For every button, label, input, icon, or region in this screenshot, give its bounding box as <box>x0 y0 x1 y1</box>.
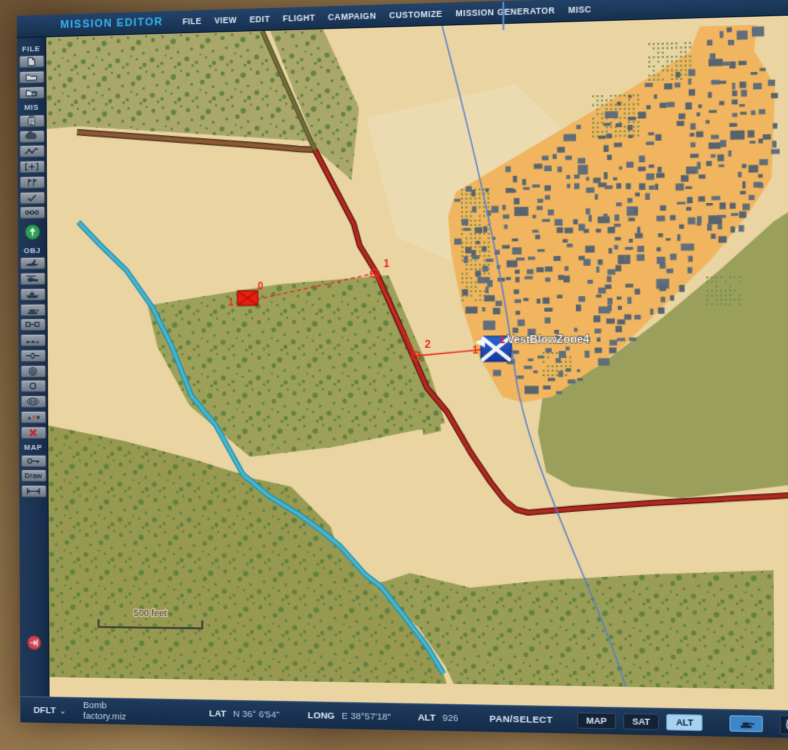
menu-item-misc[interactable]: MISC <box>568 4 591 15</box>
static-object-icon[interactable] <box>20 334 46 347</box>
altitude-readout: ALT 926 <box>418 712 459 724</box>
latitude-readout: LAT N 36° 6'54" <box>209 708 279 720</box>
bullseye-icon[interactable] <box>19 160 45 173</box>
ruler-icon[interactable] <box>21 485 47 498</box>
checklist-icon[interactable] <box>19 191 45 204</box>
lat-value: N 36° 6'54" <box>233 708 279 720</box>
menu-item-edit[interactable]: EDIT <box>250 14 270 25</box>
theme-dropdown[interactable]: DFLT ⌄ <box>34 705 66 716</box>
static-name-number: 1 <box>499 335 505 346</box>
open-mission-icon[interactable] <box>19 71 45 84</box>
pipeline-icon[interactable] <box>20 349 46 362</box>
longitude-readout: LONG E 38°57'18" <box>308 710 391 723</box>
zone-icon[interactable] <box>20 380 46 393</box>
toolbar-section-obj: OBJ <box>24 246 41 255</box>
mission-file-name: Bomb factory.miz <box>83 700 126 722</box>
menu-item-customize[interactable]: CUSTOMIZE <box>389 9 442 21</box>
template-icon[interactable] <box>20 365 46 378</box>
vehicle-icon[interactable] <box>20 303 46 316</box>
toolbar-section-file: FILE <box>22 44 40 53</box>
waypoint-2-label: 2 <box>425 340 431 351</box>
delete-icon[interactable] <box>20 426 46 439</box>
start-icon[interactable] <box>19 222 45 241</box>
terrain-map: 1 0 1 2 1 1 VestBlowZone4 <box>46 15 788 710</box>
route-line-artifact <box>502 2 504 30</box>
vr-backdrop: MISSION EDITOR FILEVIEWEDITFLIGHTCAMPAIG… <box>0 0 788 750</box>
menu-item-mission-generator[interactable]: MISSION GENERATOR <box>455 5 555 18</box>
flags-icon[interactable] <box>19 176 45 189</box>
waypoint-1-label: 1 <box>384 259 390 270</box>
units-group-icon[interactable] <box>20 395 46 408</box>
tank-icon[interactable] <box>730 715 763 732</box>
chevron-down-icon: ⌄ <box>60 706 66 715</box>
unit-number-label: 1 <box>228 298 234 309</box>
alt-label: ALT <box>418 712 436 723</box>
airplane-icon[interactable] <box>19 257 45 270</box>
new-mission-icon[interactable] <box>18 55 44 68</box>
draw-button[interactable]: Draw <box>21 470 47 483</box>
static-name-label: VestBlowZone4 <box>507 333 590 346</box>
menu-items: FILEVIEWEDITFLIGHTCAMPAIGNCUSTOMIZEMISSI… <box>182 4 591 26</box>
routes-icon[interactable] <box>19 145 45 158</box>
helicopter-icon[interactable] <box>20 272 46 285</box>
static-number-label: 1 <box>472 345 478 356</box>
alt-view-button[interactable]: ALT <box>667 714 703 731</box>
alt-value: 926 <box>442 712 458 723</box>
map-view-button[interactable]: MAP <box>577 712 616 729</box>
clock-icon[interactable] <box>780 715 788 735</box>
linked-group-icon[interactable] <box>20 318 46 331</box>
theme-label: DFLT <box>34 705 56 716</box>
menu-item-file[interactable]: FILE <box>182 16 201 26</box>
ship-icon[interactable] <box>20 288 46 301</box>
save-mission-icon[interactable] <box>19 86 45 99</box>
mode-indicator: PAN/SELECT <box>489 713 552 725</box>
mission-editor-window: MISSION EDITOR FILEVIEWEDITFLIGHTCAMPAIG… <box>17 0 788 738</box>
toolbar-section-map: MAP <box>24 443 42 452</box>
map-viewport[interactable]: 1 0 1 2 1 1 VestBlowZone4 <box>46 15 788 710</box>
lat-label: LAT <box>209 708 226 719</box>
left-toolbar: FILEMISOBJMAPDraw <box>17 37 50 696</box>
menu-item-campaign[interactable]: CAMPAIGN <box>328 11 376 22</box>
shapes-icon[interactable] <box>20 411 46 424</box>
scale-label: 500 feet <box>134 608 167 618</box>
ground-unit[interactable] <box>237 291 258 306</box>
weather-icon[interactable] <box>19 130 45 143</box>
waypoint-0-label: 0 <box>258 281 264 292</box>
briefing-icon[interactable] <box>19 114 45 127</box>
long-label: LONG <box>308 710 335 721</box>
triggers-icon[interactable] <box>19 206 45 219</box>
long-value: E 38°57'18" <box>342 710 391 722</box>
sat-view-button[interactable]: SAT <box>623 713 659 730</box>
app-title: MISSION EDITOR <box>60 16 163 31</box>
menu-item-flight[interactable]: FLIGHT <box>283 13 315 24</box>
exit-icon[interactable] <box>27 635 42 654</box>
menu-item-view[interactable]: VIEW <box>214 15 237 26</box>
toolbar-section-mis: MIS <box>24 103 39 112</box>
key-icon[interactable] <box>20 454 46 467</box>
